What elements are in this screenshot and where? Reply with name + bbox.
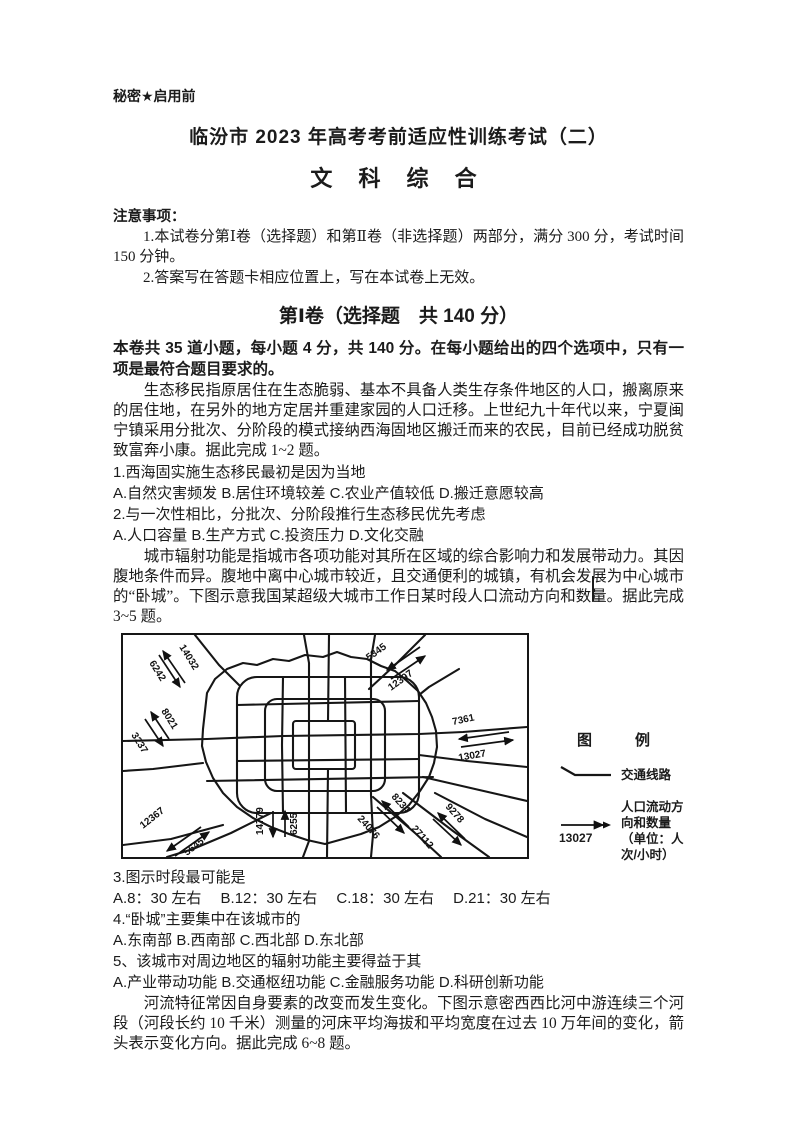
question-3-stem: 3.图示时段最可能是 [113,867,684,888]
flow-value: 12367 [138,805,167,831]
legend-item-road: 交通线路 [559,764,684,785]
exam-title: 临汾市 2023 年高考考前适应性训练考试（二） [113,122,684,149]
notices-heading: 注意事项： [113,205,684,226]
question-4-options: A.东南部 B.西南部 C.西北部 D.东北部 [113,930,684,951]
flow-arrow-icon: 13027 [559,817,615,845]
city-flow-map: 14032 6242 5345 12397 8021 3237 7361 130… [123,635,527,857]
exam-paper-page: 秘密★启用前 临汾市 2023 年高考考前适应性训练考试（二） 文 科 综 合 … [0,0,794,1122]
flow-value: 6255 [289,812,300,835]
question-2-options: A.人口容量 B.生产方式 C.投资压力 D.文化交融 [113,525,684,546]
flow-labels: 14032 6242 5345 12397 8021 3237 7361 130… [128,641,487,857]
scan-artifact-mark [592,576,594,601]
passage-1: 生态移民指原居住在生态脆弱、基本不具备人类生存条件地区的人口，搬离原来的居住地，… [113,381,684,461]
legend-flow-label-line1: 人口流动方向和数量 [621,799,684,831]
flow-value: 5345 [364,641,389,663]
legend-arrow-value: 13027 [559,831,592,845]
legend-flow-label-line2: （单位：人次/小时） [621,831,684,863]
question-4-stem: 4.“卧城”主要集中在该城市的 [113,909,684,930]
flow-value: 3237 [128,731,149,756]
subject-title: 文 科 综 合 [113,161,684,193]
notice-item-1: 1.本试卷分第Ⅰ卷（选择题）和第Ⅱ卷（非选择题）两部分，满分 300 分，考试时… [113,227,684,267]
secrecy-marking: 秘密★启用前 [113,86,684,106]
legend-title: 图 例 [577,729,684,750]
road-line-icon [559,764,615,785]
question-2-stem: 2.与一次性相比，分批次、分阶段推行生态移民优先考虑 [113,504,684,525]
passage-2: 城市辐射功能是指城市各项功能对其所在区域的综合影响力和发展带动力。其因腹地条件而… [113,547,684,627]
flow-value: 14779 [255,807,266,835]
figure-city-flow: 14032 6242 5345 12397 8021 3237 7361 130… [121,633,684,863]
question-1-options: A.自然灾害频发 B.居住环境较差 C.农业产值较低 D.搬迁意愿较高 [113,483,684,504]
section1-instructions: 本卷共 35 道小题，每小题 4 分，共 140 分。在每小题给出的四个选项中，… [113,338,684,380]
question-5-stem: 5、该城市对周边地区的辐射功能主要得益于其 [113,951,684,972]
flow-arrow-ne-in [387,647,420,670]
legend-item-flow: 13027 人口流动方向和数量 （单位：人次/小时） [559,799,684,863]
map-legend: 图 例 交通线路 13027 人口流动方向和数量 （单位：人次/小时） [559,633,684,863]
city-flow-map-frame: 14032 6242 5345 12397 8021 3237 7361 130… [121,633,529,859]
question-5-options: A.产业带动功能 B.交通枢纽功能 C.金融服务功能 D.科研创新功能 [113,972,684,993]
question-3-options: A.8：30 左右 B.12：30 左右 C.18：30 左右 D.21：30 … [113,888,684,909]
passage-3: 河流特征常因自身要素的改变而发生变化。下图示意密西西比河中游连续三个河段（河段长… [113,994,684,1054]
flow-value: 5645 [182,836,207,857]
notice-item-2: 2.答案写在答题卡相应位置上，写在本试卷上无效。 [113,268,684,288]
flow-value: 9278 [443,802,466,826]
legend-road-label: 交通线路 [621,767,671,783]
legend-flow-label: 人口流动方向和数量 （单位：人次/小时） [621,799,684,863]
flow-arrow-w-in [145,719,163,746]
section1-title: 第Ⅰ卷（选择题 共 140 分） [113,301,684,328]
flow-arrow-e-out [461,740,513,747]
question-1-stem: 1.西海固实施生态移民最初是因为当地 [113,462,684,483]
flow-value: 7361 [451,712,475,727]
flow-value: 14032 [176,643,200,673]
flow-arrow-e-in [459,732,509,739]
